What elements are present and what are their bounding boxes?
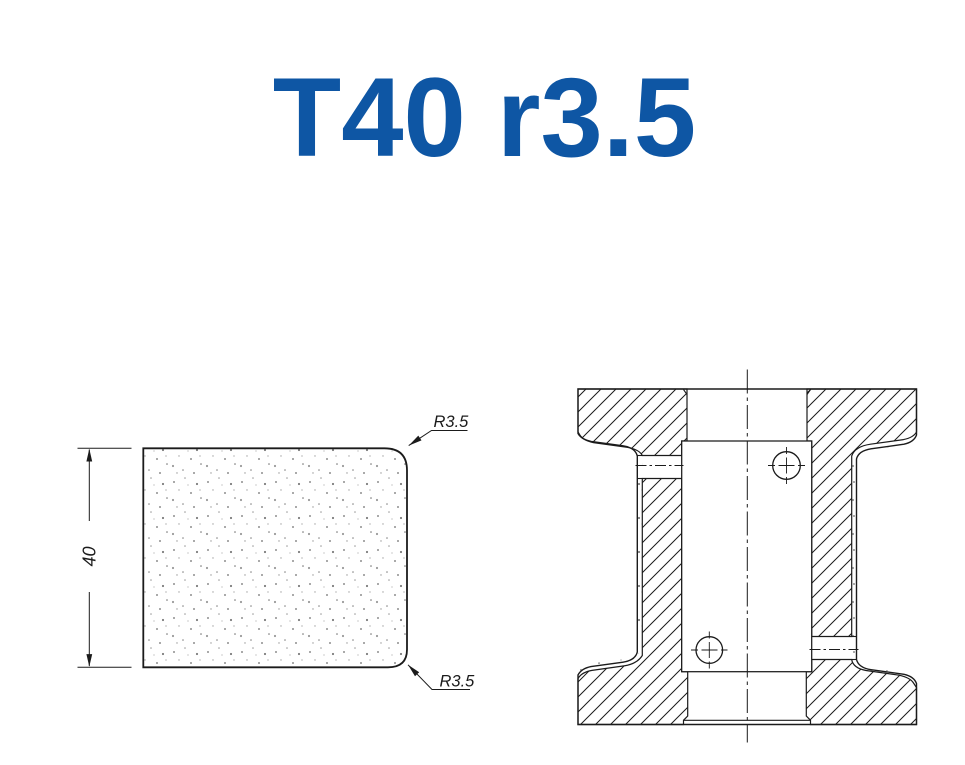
hatch-region-top-left xyxy=(578,389,687,456)
page: { "title": { "text": "T40 r3.5", "color"… xyxy=(0,0,965,765)
abrasive-band-left xyxy=(578,434,642,676)
leader-arrow-top xyxy=(409,436,422,446)
hatch-region-bottom-left xyxy=(578,479,688,725)
technical-drawing: 40 R3.5 R3.5 xyxy=(0,0,965,765)
dimension-arrow-down xyxy=(86,654,92,667)
top-radius-leader: R3.5 xyxy=(409,413,469,446)
hatch-region-top-right xyxy=(807,389,917,637)
hatch-region-bottom-right xyxy=(806,660,916,725)
profile-view: 40 R3.5 R3.5 xyxy=(78,413,476,691)
top-radius-label: R3.5 xyxy=(434,413,470,431)
section-view xyxy=(578,370,917,743)
bottom-radius-label: R3.5 xyxy=(440,673,476,691)
hub-sleeve xyxy=(682,441,812,672)
profile-abrasive-texture xyxy=(143,448,407,667)
height-dimension-label: 40 xyxy=(80,546,100,566)
dimension-arrow-up xyxy=(86,449,92,462)
abrasive-band-right xyxy=(852,435,917,684)
bottom-radius-leader: R3.5 xyxy=(408,665,475,691)
